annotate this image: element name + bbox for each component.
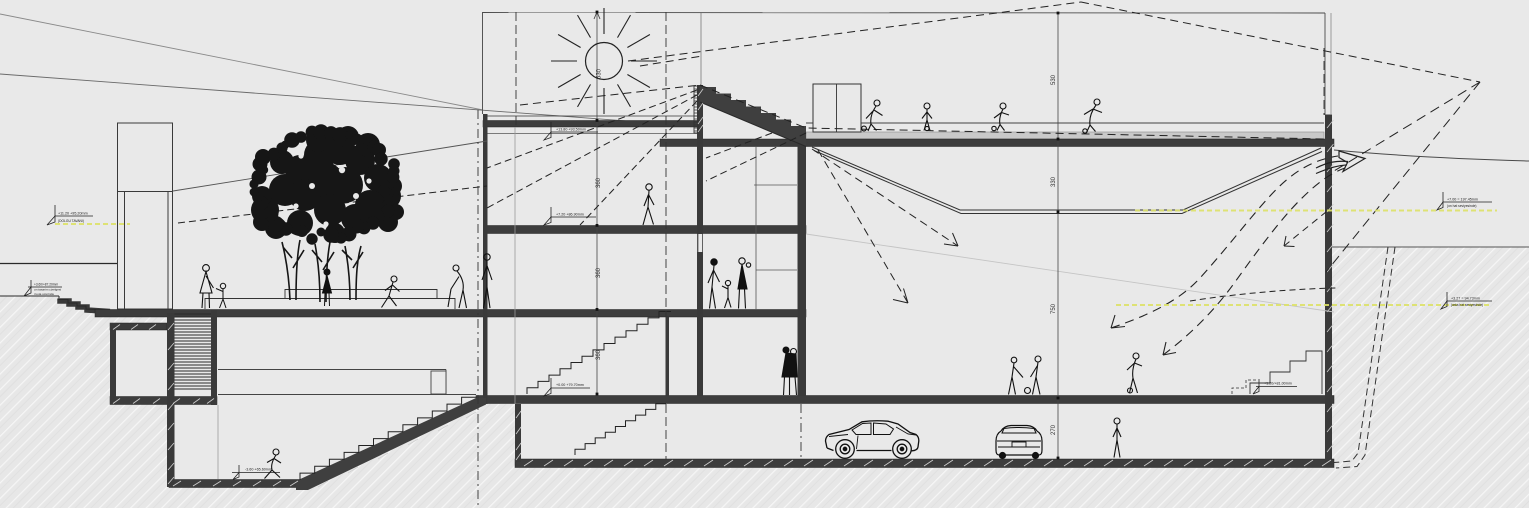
- svg-text:(DOLGU TAVANI): (DOLGU TAVANI): [58, 219, 84, 223]
- svg-text:+7.20 +86.90mm: +7.20 +86.90mm: [556, 213, 584, 217]
- svg-text:+1.20/+81.00mm: +1.20/+81.00mm: [1264, 382, 1292, 386]
- svg-text:+0.00 +79.70mm: +0.00 +79.70mm: [556, 383, 584, 387]
- svg-text:530: 530: [1051, 74, 1057, 85]
- svg-text:on tasarim cizelgesi: on tasarim cizelgesi: [34, 288, 61, 292]
- svg-text:-3.60 +65.60mm: -3.60 +65.60mm: [245, 468, 272, 472]
- svg-text:+7.00 = 197.45mm: +7.00 = 197.45mm: [1447, 198, 1478, 202]
- svg-text:360: 360: [596, 267, 602, 278]
- svg-text:(arka hat seviyesinde): (arka hat seviyesinde): [1451, 303, 1483, 307]
- svg-text:+11.20 +95.20mm: +11.20 +95.20mm: [58, 212, 88, 216]
- svg-text:360: 360: [596, 349, 602, 360]
- svg-text:530: 530: [597, 68, 603, 79]
- svg-text:270: 270: [1051, 424, 1057, 435]
- svg-text:(on hat seviyesinde): (on hat seviyesinde): [1447, 204, 1477, 208]
- svg-text:+13.80 +93.50mm: +13.80 +93.50mm: [556, 128, 586, 132]
- svg-text:+3.27 = 94.73mm: +3.27 = 94.73mm: [1451, 297, 1480, 301]
- svg-text:+3.60/+87.20mm: +3.60/+87.20mm: [34, 283, 58, 287]
- svg-text:i kota uzerinde: i kota uzerinde: [34, 292, 54, 296]
- svg-text:330: 330: [1051, 176, 1057, 187]
- svg-text:360: 360: [596, 177, 602, 188]
- svg-text:750: 750: [1051, 303, 1057, 314]
